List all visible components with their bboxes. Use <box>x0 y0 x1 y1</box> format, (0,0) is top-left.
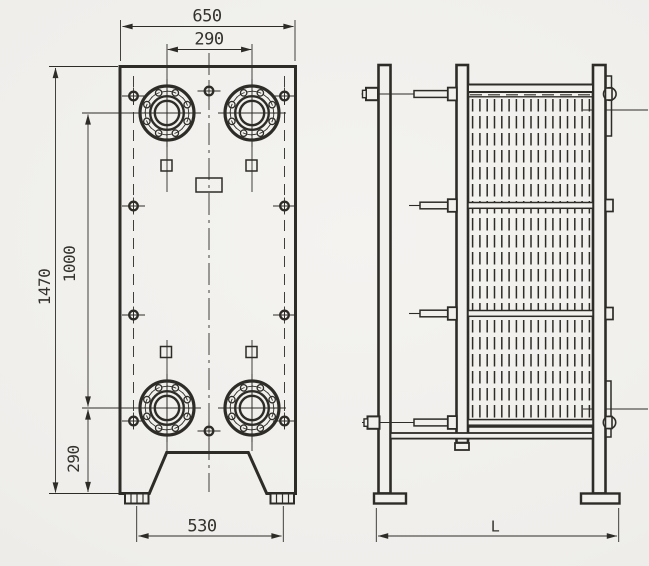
dim-foot-spacing: 530 <box>137 506 284 542</box>
plate-pack <box>473 99 590 425</box>
pressure-plate-foot <box>455 443 469 450</box>
port-flange-top-right <box>218 79 286 147</box>
port-flange-bottom-left <box>133 374 201 442</box>
square-marker-bottom-right <box>246 347 257 358</box>
pressure-plate <box>457 65 469 443</box>
dim-label-1470: 1470 <box>35 269 54 306</box>
side-view <box>362 65 649 504</box>
bolt-shaft <box>420 310 448 317</box>
dim-port-spacing-vertical: 1000 <box>60 115 88 407</box>
bolt-nut <box>448 416 457 429</box>
port-flange-bottom-right <box>218 374 286 442</box>
dim-overall-length: L <box>376 508 618 542</box>
bolt-nut <box>448 199 457 212</box>
square-marker-bottom-left <box>161 347 172 358</box>
tie-bolt-marker <box>198 83 221 100</box>
bolt-head <box>368 416 380 428</box>
tie-bolt-marker <box>273 307 296 324</box>
drawing-canvas: 650 290 1470 1000 290 530 <box>0 0 649 566</box>
bolt-through-pack <box>468 203 593 209</box>
dim-label-530: 530 <box>187 517 216 537</box>
bolt-shaft <box>420 202 448 209</box>
bolt-end-right <box>606 308 614 320</box>
dim-label-290-left: 290 <box>64 445 83 472</box>
foot-left <box>125 494 149 504</box>
front-view <box>82 44 296 504</box>
dim-overall-height: 1470 <box>35 67 123 494</box>
heat-exchanger-drawing: 650 290 1470 1000 290 530 <box>0 0 649 566</box>
foot-right <box>271 494 295 504</box>
bolt-shaft <box>414 419 448 426</box>
fixed-plate-foot <box>581 494 620 504</box>
bolt-end-right <box>606 200 614 212</box>
bolt-nut <box>448 88 457 101</box>
bolt-head <box>366 88 378 100</box>
dim-label-1000: 1000 <box>60 246 79 283</box>
fixed-frame-plate <box>593 65 606 494</box>
dim-port-to-base: 290 <box>64 410 88 493</box>
dim-label-650: 650 <box>192 7 221 27</box>
dim-port-spacing-horizontal: 290 <box>168 30 251 50</box>
support-column-foot <box>374 494 406 504</box>
square-marker-top-right <box>246 160 257 171</box>
bolt-shaft <box>414 91 448 98</box>
bolt-through-pack <box>468 311 593 317</box>
bolt-nut <box>448 307 457 320</box>
square-marker-top-left <box>161 160 172 171</box>
tie-bolt-marker <box>122 198 145 215</box>
tie-bolt-marker <box>198 423 221 440</box>
dim-label-L: L <box>491 518 500 536</box>
guide-bar <box>391 433 594 439</box>
tie-bolt-marker <box>273 198 296 215</box>
carrying-bar <box>468 85 593 93</box>
bolt-through-pack <box>468 420 593 426</box>
dim-label-290-top: 290 <box>194 30 223 50</box>
port-flange-top-left <box>133 79 201 147</box>
tie-bolt-marker <box>122 307 145 324</box>
